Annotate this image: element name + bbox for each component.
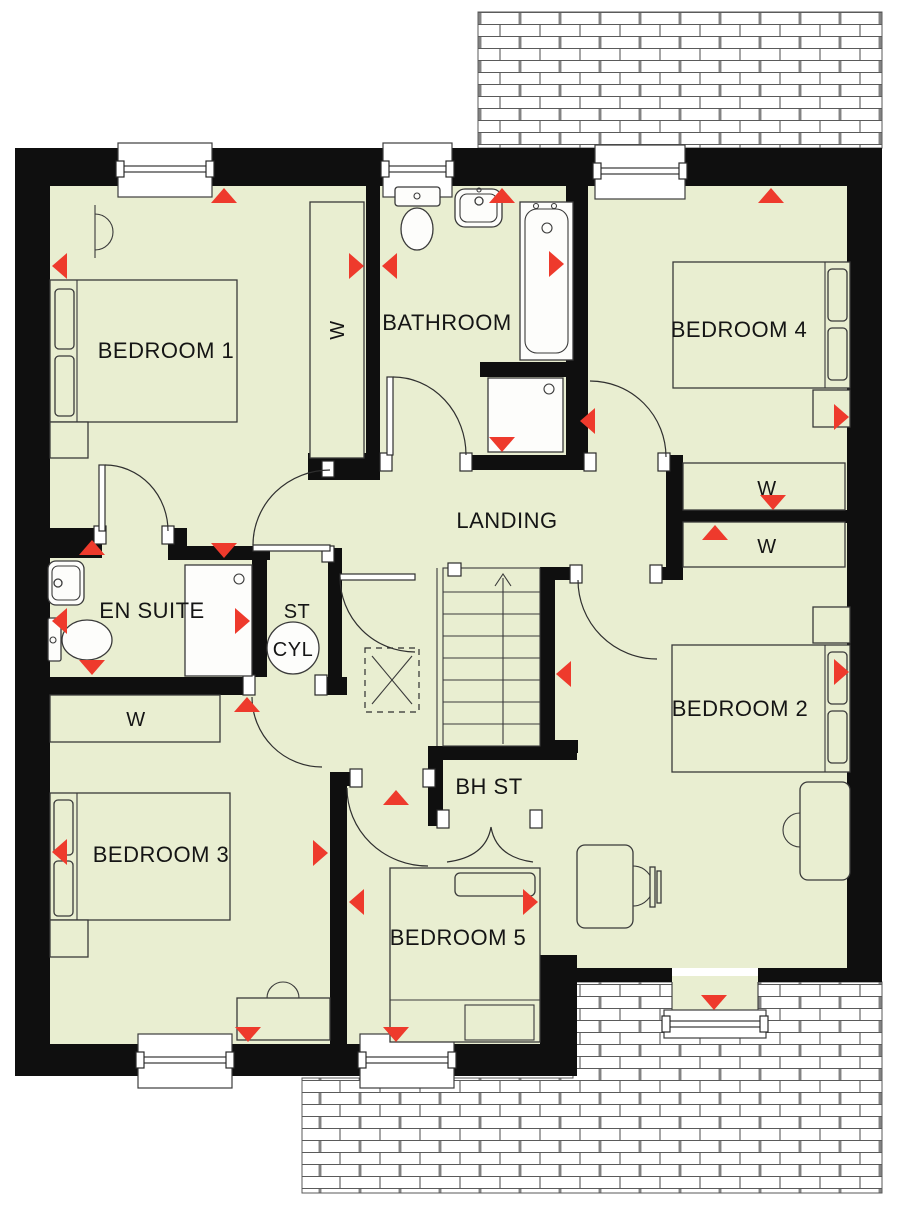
- floor-plan-page: BEDROOM 1 BATHROOM BEDROOM 4 LANDING EN …: [0, 0, 900, 1228]
- room-label-bedroom3: BEDROOM 3: [93, 842, 230, 867]
- window-bedroom3: [136, 1034, 234, 1088]
- label-cylinder: CYL: [273, 639, 313, 661]
- room-label-bedroom5: BEDROOM 5: [390, 925, 527, 950]
- label-wardrobe-bedroom4: W: [757, 478, 776, 500]
- sink-bathroom: [455, 188, 502, 227]
- window-bedroom2-bay: [662, 1010, 768, 1038]
- room-label-bedroom1: BEDROOM 1: [98, 338, 235, 363]
- room-label-bathroom: BATHROOM: [382, 310, 511, 335]
- bedside-table-bedroom4: [813, 390, 850, 427]
- room-label-landing: LANDING: [456, 508, 557, 533]
- label-bulkhead-store: BH ST: [455, 774, 522, 799]
- label-st-cupboard: ST: [284, 601, 311, 623]
- room-label-ensuite: EN SUITE: [99, 598, 204, 623]
- bedside-table-bedroom3: [50, 920, 88, 957]
- room-label-bedroom4: BEDROOM 4: [671, 317, 808, 342]
- floor-plan-svg: BEDROOM 1 BATHROOM BEDROOM 4 LANDING EN …: [0, 0, 900, 1228]
- bathtub: [520, 202, 573, 360]
- room-label-bedroom2: BEDROOM 2: [672, 696, 809, 721]
- window-bedroom1: [116, 143, 214, 197]
- brick-hatch-top-right: [478, 12, 882, 148]
- label-wardrobe-bedroom1: W: [327, 320, 349, 339]
- bedside-table-bedroom1: [50, 422, 88, 458]
- bedside-table-bedroom2: [813, 607, 850, 643]
- label-wardrobe-bedroom2: W: [757, 536, 776, 558]
- bed-bedroom5: [390, 868, 540, 1042]
- window-bedroom4: [593, 145, 687, 199]
- label-wardrobe-bedroom3: W: [126, 709, 145, 731]
- sink-ensuite: [48, 561, 84, 605]
